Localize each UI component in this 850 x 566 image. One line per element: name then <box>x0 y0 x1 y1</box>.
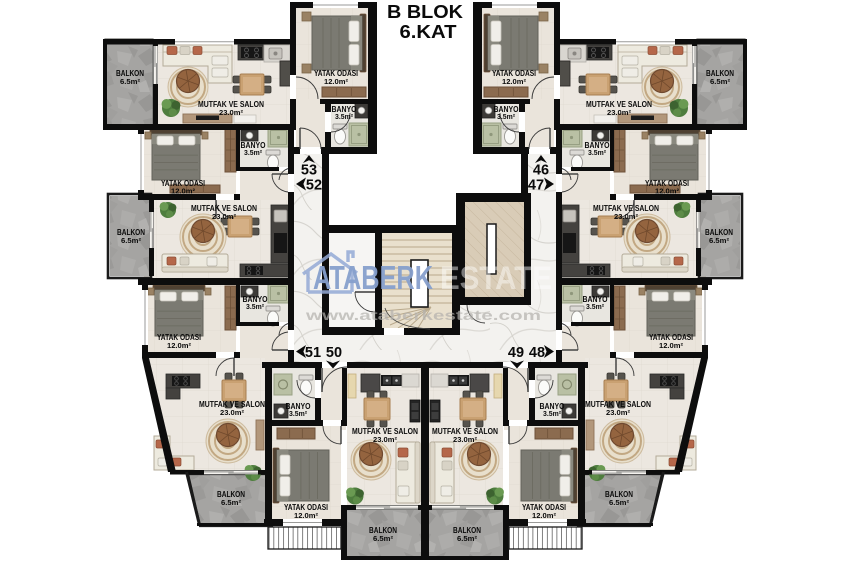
svg-text:12.0m²: 12.0m² <box>502 79 527 86</box>
svg-text:MUTFAK VE SALON: MUTFAK VE SALON <box>198 100 264 109</box>
svg-text:ATABERK: ATABERK <box>313 259 433 296</box>
svg-text:47: 47 <box>528 178 544 194</box>
svg-text:12.0m²: 12.0m² <box>324 79 349 86</box>
svg-text:BANYO: BANYO <box>583 295 608 304</box>
svg-text:23.0m²: 23.0m² <box>212 214 237 221</box>
svg-text:YATAK ODASI: YATAK ODASI <box>314 69 358 78</box>
svg-text:YATAK ODASI: YATAK ODASI <box>161 179 205 188</box>
svg-text:23.0m²: 23.0m² <box>453 437 478 444</box>
svg-text:MUTFAK VE SALON: MUTFAK VE SALON <box>432 427 498 436</box>
svg-text:3.5m²: 3.5m² <box>588 150 607 157</box>
svg-text:BALKON: BALKON <box>369 526 397 535</box>
svg-text:BANYO: BANYO <box>585 141 610 150</box>
svg-text:BANYO: BANYO <box>332 105 357 114</box>
svg-text:23.0m²: 23.0m² <box>219 110 244 117</box>
svg-text:BANYO: BANYO <box>494 105 519 114</box>
svg-text:B BLOK: B BLOK <box>387 1 464 22</box>
svg-text:BALKON: BALKON <box>116 69 144 78</box>
svg-text:12.0m²: 12.0m² <box>655 189 680 196</box>
svg-text:BALKON: BALKON <box>605 490 633 499</box>
svg-text:6.5m²: 6.5m² <box>373 536 394 543</box>
svg-text:BANYO: BANYO <box>286 402 311 411</box>
svg-text:49: 49 <box>508 345 524 361</box>
svg-text:6.KAT: 6.KAT <box>400 21 458 42</box>
svg-text:12.0m²: 12.0m² <box>532 513 557 520</box>
svg-text:YATAK ODASI: YATAK ODASI <box>522 503 566 512</box>
svg-text:MUTFAK VE SALON: MUTFAK VE SALON <box>199 400 265 409</box>
svg-text:BANYO: BANYO <box>540 402 565 411</box>
svg-text:YATAK ODASI: YATAK ODASI <box>157 333 201 342</box>
svg-text:3.5m²: 3.5m² <box>335 114 354 121</box>
svg-text:12.0m²: 12.0m² <box>659 343 684 350</box>
svg-text:YATAK ODASI: YATAK ODASI <box>645 179 689 188</box>
svg-text:23.0m²: 23.0m² <box>607 110 632 117</box>
svg-text:YATAK ODASI: YATAK ODASI <box>284 503 328 512</box>
svg-text:MUTFAK VE SALON: MUTFAK VE SALON <box>352 427 418 436</box>
svg-text:50: 50 <box>326 345 342 361</box>
svg-text:6.5m²: 6.5m² <box>709 238 730 245</box>
svg-text:53: 53 <box>301 163 317 179</box>
svg-text:52: 52 <box>306 178 322 194</box>
svg-text:6.5m²: 6.5m² <box>221 500 242 507</box>
svg-text:6.5m²: 6.5m² <box>609 500 630 507</box>
svg-text:3.5m²: 3.5m² <box>244 150 263 157</box>
svg-text:6.5m²: 6.5m² <box>710 79 731 86</box>
svg-text:12.0m²: 12.0m² <box>294 513 319 520</box>
svg-text:48: 48 <box>529 345 545 361</box>
svg-text:BALKON: BALKON <box>706 69 734 78</box>
svg-text:46: 46 <box>533 163 549 179</box>
svg-text:BALKON: BALKON <box>217 490 245 499</box>
svg-text:YATAK ODASI: YATAK ODASI <box>649 333 693 342</box>
svg-text:23.0m²: 23.0m² <box>614 214 639 221</box>
svg-text:3.5m²: 3.5m² <box>497 114 516 121</box>
svg-text:3.5m²: 3.5m² <box>289 411 308 418</box>
svg-text:6.5m²: 6.5m² <box>457 536 478 543</box>
svg-text:MUTFAK VE SALON: MUTFAK VE SALON <box>585 400 651 409</box>
svg-text:MUTFAK VE SALON: MUTFAK VE SALON <box>593 204 659 213</box>
svg-text:www.ataberkestate.com: www.ataberkestate.com <box>304 308 541 323</box>
svg-text:3.5m²: 3.5m² <box>246 304 265 311</box>
svg-text:BANYO: BANYO <box>243 295 268 304</box>
svg-text:BALKON: BALKON <box>705 228 733 237</box>
svg-text:23.0m²: 23.0m² <box>373 437 398 444</box>
svg-text:23.0m²: 23.0m² <box>606 410 631 417</box>
svg-text:BALKON: BALKON <box>117 228 145 237</box>
svg-text:YATAK ODASI: YATAK ODASI <box>492 69 536 78</box>
svg-text:3.5m²: 3.5m² <box>586 304 605 311</box>
svg-text:6.5m²: 6.5m² <box>120 79 141 86</box>
svg-text:6.5m²: 6.5m² <box>121 238 142 245</box>
svg-text:23.0m²: 23.0m² <box>220 410 245 417</box>
svg-text:12.0m²: 12.0m² <box>171 189 196 196</box>
svg-text:BANYO: BANYO <box>241 141 266 150</box>
svg-text:51: 51 <box>305 345 321 361</box>
svg-text:ESTATE: ESTATE <box>440 260 552 296</box>
svg-text:MUTFAK VE SALON: MUTFAK VE SALON <box>586 100 652 109</box>
svg-text:12.0m²: 12.0m² <box>167 343 192 350</box>
svg-text:BALKON: BALKON <box>453 526 481 535</box>
svg-text:MUTFAK VE SALON: MUTFAK VE SALON <box>191 204 257 213</box>
svg-text:3.5m²: 3.5m² <box>543 411 562 418</box>
